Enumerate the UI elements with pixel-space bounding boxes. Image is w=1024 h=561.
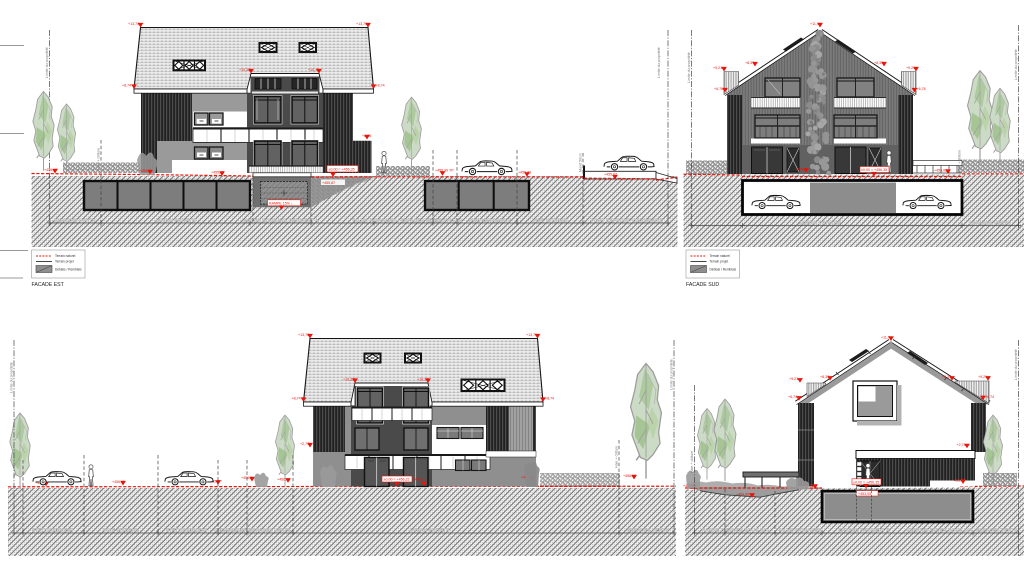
svg-text:+456,21: +456,21	[241, 476, 254, 480]
svg-text:+8,74: +8,74	[545, 397, 554, 401]
svg-text:+8,37: +8,37	[745, 61, 754, 65]
svg-text:RAMPE 15% ↓: RAMPE 15% ↓	[269, 201, 293, 205]
svg-text:+8,74: +8,74	[292, 397, 301, 401]
svg-text:Limite du propritété: Limite du propritété	[10, 362, 14, 393]
svg-text:JARDIN PRIVATIF: JARDIN PRIVATIF	[799, 220, 841, 225]
svg-text:RAMPE D'ACCES SOUS SOL: RAMPE D'ACCES SOUS SOL	[702, 528, 770, 533]
svg-text:ESPACES VERTS: ESPACES VERTS	[969, 220, 1010, 225]
svg-text:Haie + clôture: Haie + clôture	[690, 451, 694, 473]
svg-text:+8,37: +8,37	[874, 61, 883, 65]
svg-text:+455,95: +455,95	[211, 171, 224, 175]
svg-text:+453,05: +453,05	[858, 492, 871, 496]
svg-text:+8,74: +8,74	[122, 84, 131, 88]
svg-text:JARDIN PRIVATIF: JARDIN PRIVATIF	[155, 218, 197, 223]
svg-text:Terrain naturel: Terrain naturel	[55, 254, 76, 258]
svg-text:PONT RAPPORT VOLONTAIRE: PONT RAPPORT VOLONTAIRE	[591, 218, 664, 223]
svg-text:+13,74: +13,74	[128, 22, 139, 26]
svg-text:FACADE EST: FACADE EST	[32, 282, 65, 288]
svg-text:TALUS PAYSAGER: TALUS PAYSAGER	[778, 528, 822, 533]
svg-text:+9,21: +9,21	[978, 375, 987, 379]
svg-text:+456,11: +456,11	[112, 480, 125, 484]
svg-text:+455,87: +455,87	[322, 181, 335, 185]
svg-text:+456,10: +456,10	[795, 167, 808, 171]
svg-text:Haie + clôture: Haie + clôture	[958, 150, 962, 172]
svg-text:Déblais / Remblais: Déblais / Remblais	[710, 268, 737, 272]
svg-text:Haie + clôture: Haie + clôture	[615, 446, 619, 468]
svg-text:+456,06: +456,06	[952, 479, 965, 483]
svg-text:+456,13: +456,13	[623, 474, 636, 478]
svg-text:ACCES SOUS-SOL BATIMENT A: ACCES SOUS-SOL BATIMENT A	[243, 218, 319, 223]
svg-text:+6,76: +6,76	[917, 87, 926, 91]
svg-text:+6,76: +6,76	[714, 87, 723, 91]
svg-text:ESPACES VERTS: ESPACES VERTS	[976, 528, 1017, 533]
svg-text:+2,74: +2,74	[300, 442, 309, 446]
svg-text:Limite du propritété: Limite du propritété	[687, 52, 691, 83]
svg-text:Terrain naturel: Terrain naturel	[710, 254, 731, 258]
svg-text:+8,74: +8,74	[376, 84, 385, 88]
svg-text:+2,76: +2,76	[362, 134, 371, 138]
svg-text:+456,10: +456,10	[139, 169, 152, 173]
svg-text:+10,38: +10,38	[239, 68, 250, 72]
svg-text:CHEMINEMENT: CHEMINEMENT	[213, 528, 250, 533]
svg-text:+8,37: +8,37	[942, 375, 951, 379]
svg-text:Terrain projet: Terrain projet	[710, 260, 729, 264]
svg-text:+456,13: +456,13	[277, 477, 290, 481]
svg-text:Limite du propritété: Limite du propritété	[1014, 349, 1018, 380]
svg-text:Muret 50cm: Muret 50cm	[579, 153, 583, 172]
svg-text:Limite du propritété: Limite du propritété	[45, 47, 49, 78]
svg-text:STATIONNEMENT: STATIONNEMENT	[469, 218, 511, 223]
svg-text:+9,21: +9,21	[906, 66, 915, 70]
svg-text:TERRAIN ACCES SOUS SOL: TERRAIN ACCES SOUS SOL	[906, 528, 974, 533]
svg-text:+456,17: +456,17	[44, 168, 57, 172]
svg-text:ESPACES VERTS: ESPACES VERTS	[54, 218, 95, 223]
svg-text:ESPACES VERTS: ESPACES VERTS	[627, 528, 668, 533]
svg-text:±0,00 = +456,35: ±0,00 = +456,35	[861, 168, 887, 172]
svg-text:+13,74: +13,74	[356, 22, 367, 26]
svg-text:+456,06: +456,06	[934, 169, 947, 173]
svg-text:+13,76: +13,76	[526, 333, 537, 337]
svg-text:+9,21: +9,21	[713, 66, 722, 70]
svg-text:FACADE SUD: FACADE SUD	[686, 282, 719, 288]
svg-text:VOIE INTERNE: VOIE INTERNE	[103, 528, 138, 533]
svg-text:+13,76: +13,76	[298, 333, 309, 337]
svg-text:+456,14: +456,14	[413, 478, 426, 482]
svg-text:Déblais / Remblais: Déblais / Remblais	[55, 268, 82, 272]
svg-text:+10,38: +10,38	[308, 68, 319, 72]
svg-text:±0,00 = +456,35: ±0,00 = +456,35	[329, 168, 355, 172]
svg-text:+11,74: +11,74	[810, 22, 821, 26]
svg-text:Limite du propritété: Limite du propritété	[657, 47, 661, 78]
svg-text:+6,74: +6,74	[788, 395, 797, 399]
svg-text:Limite du propritété: Limite du propritété	[1014, 49, 1018, 80]
svg-text:VOIE INTERNE: VOIE INTERNE	[532, 218, 567, 223]
svg-text:±0,00 = +456,22: ±0,00 = +456,22	[384, 478, 410, 482]
svg-text:+10,38: +10,38	[343, 378, 354, 382]
svg-text:STATIONNEMENT: STATIONNEMENT	[166, 528, 208, 533]
svg-text:STATIONNEMENT: STATIONNEMENT	[32, 528, 74, 533]
svg-text:+8,37: +8,37	[820, 375, 829, 379]
svg-text:+11,74: +11,74	[881, 336, 892, 340]
svg-text:+10,38: +10,38	[417, 378, 428, 382]
svg-text:ENTREE BATIMENT A: ENTREE BATIMENT A	[838, 528, 890, 533]
svg-text:JARDIN PRIVATIF: JARDIN PRIVATIF	[409, 528, 451, 533]
svg-text:±0,00 = +456,35: ±0,00 = +456,35	[853, 480, 879, 484]
svg-text:+9,21: +9,21	[789, 377, 798, 381]
svg-text:Terrain projet: Terrain projet	[55, 260, 74, 264]
svg-text:Limite du propritété: Limite du propritété	[670, 359, 674, 390]
svg-text:+2,74: +2,74	[957, 443, 966, 447]
svg-text:ESPACES VERTS: ESPACES VERTS	[249, 528, 290, 533]
svg-text:+6,74: +6,74	[985, 395, 994, 399]
